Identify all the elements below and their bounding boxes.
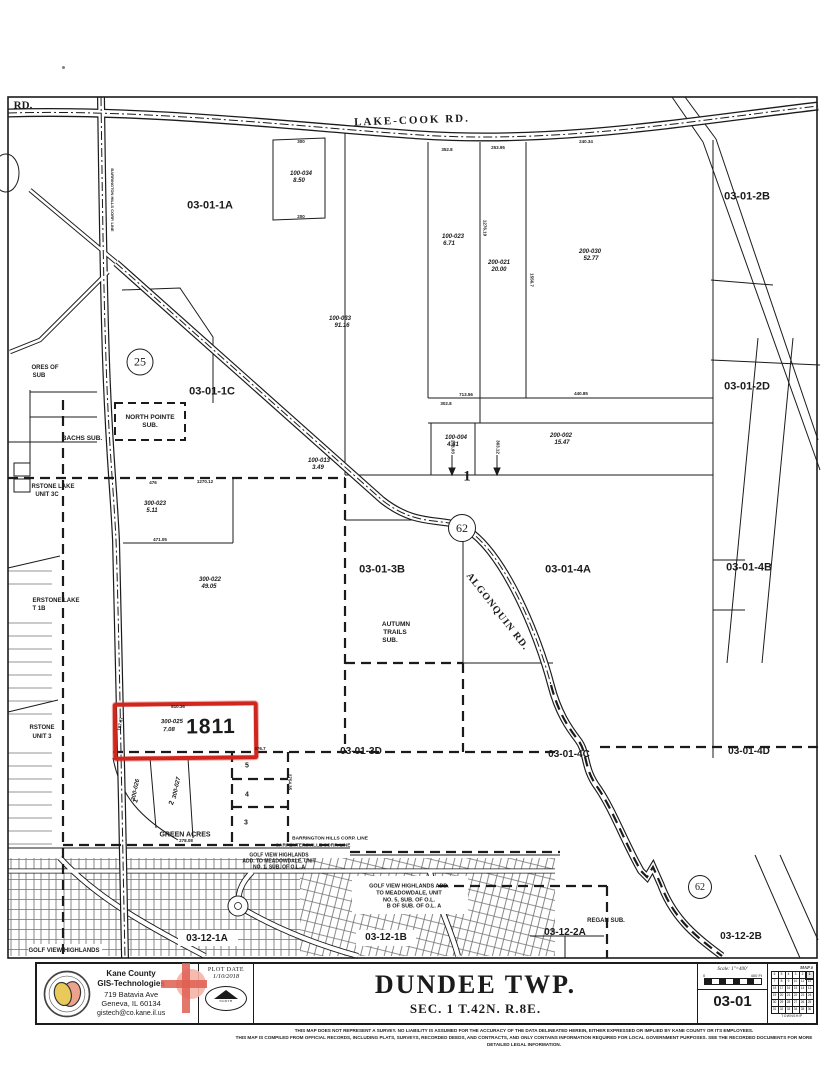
township-section-8: 8	[778, 979, 785, 986]
township-section-9: 9	[785, 979, 792, 986]
township-section-7: 7	[771, 979, 778, 986]
disclaimer: THIS MAP DOES NOT REPRESENT A SURVEY. NO…	[226, 1028, 822, 1049]
township-section-17: 17	[778, 986, 785, 993]
township-section-24: 24	[806, 993, 813, 1000]
scale-max: 400 Ft	[751, 973, 762, 978]
township-section-28: 28	[785, 1000, 792, 1007]
township-section-26: 26	[799, 1000, 806, 1007]
north-arrow: NORTH	[205, 986, 247, 1011]
plat-map-page: 300-025 7.08 1811 03-01-1A03-01-2B03-01-…	[0, 0, 826, 1080]
disclaimer-line1: THIS MAP DOES NOT REPRESENT A SURVEY. NO…	[226, 1028, 822, 1035]
map-title-cell: DUNDEE TWP. SEC. 1 T.42N. R.8E.	[254, 964, 698, 1023]
township-section-13: 13	[806, 986, 813, 993]
township-section-30: 30	[771, 1000, 778, 1007]
map-grid-footer: TOWNSHIP	[768, 1014, 816, 1018]
township-section-32: 32	[778, 1007, 785, 1014]
township-section-3: 3	[792, 972, 799, 979]
township-title: DUNDEE TWP.	[375, 970, 576, 1000]
township-section-25: 25	[806, 1000, 813, 1007]
township-section-12: 12	[806, 979, 813, 986]
scale-zero: 0	[703, 973, 705, 978]
township-section-1: 1	[806, 972, 813, 979]
township-section-22: 22	[792, 993, 799, 1000]
agency-name-line1: Kane County	[97, 969, 165, 979]
township-section-2: 2	[799, 972, 806, 979]
route-marker-25: 25	[127, 349, 154, 376]
township-section-33: 33	[785, 1007, 792, 1014]
title-block: Kane County GIS-Technologies 719 Batavia…	[35, 962, 818, 1025]
plot-date-value: 1/10/2018	[199, 973, 253, 980]
scale-bar	[704, 978, 762, 985]
township-section-11: 11	[799, 979, 806, 986]
township-section-4: 4	[785, 972, 792, 979]
township-section-29: 29	[778, 1000, 785, 1007]
route-marker-62: 62	[688, 875, 712, 899]
plot-date-cell: PLOT DATE 1/10/2018 NORTH	[199, 964, 254, 1023]
kane-county-seal	[42, 969, 92, 1019]
township-section-15: 15	[792, 986, 799, 993]
agency-cell: Kane County GIS-Technologies 719 Batavia…	[37, 964, 199, 1023]
map-grid-title: MAP #	[768, 965, 816, 970]
route-markers-layer: 256262	[0, 0, 826, 1080]
township-section-5: 5	[778, 972, 785, 979]
township-section-19: 19	[771, 993, 778, 1000]
township-section-14: 14	[799, 986, 806, 993]
agency-name-line2: GIS-Technologies	[97, 979, 165, 989]
township-section-20: 20	[778, 993, 785, 1000]
township-section-16: 16	[785, 986, 792, 993]
north-arrow-icon	[214, 990, 238, 999]
sheet-number: 03-01	[698, 989, 767, 1010]
agency-city: Geneva, IL 60134	[97, 999, 165, 1009]
township-section-34: 34	[792, 1007, 799, 1014]
township-section-31: 31	[771, 1007, 778, 1014]
section-subtitle: SEC. 1 T.42N. R.8E.	[410, 1001, 541, 1017]
township-section-18: 18	[771, 986, 778, 993]
township-section-23: 23	[799, 993, 806, 1000]
agency-address: Kane County GIS-Technologies 719 Batavia…	[97, 969, 165, 1018]
scale-label: Scale: 1"=400'	[698, 967, 767, 972]
scale-cell: Scale: 1"=400' 0 400 Ft 03-01	[698, 964, 768, 1023]
township-section-grid: 6543217891011121817161514131920212223243…	[771, 971, 814, 1014]
township-section-10: 10	[792, 979, 799, 986]
township-section-35: 35	[799, 1007, 806, 1014]
route-marker-62: 62	[448, 514, 476, 542]
agency-street: 719 Batavia Ave	[97, 990, 165, 1000]
agency-email: gistech@co.kane.il.us	[97, 1009, 165, 1018]
township-section-27: 27	[792, 1000, 799, 1007]
township-grid-cell: MAP # 6543217891011121817161514131920212…	[768, 964, 816, 1023]
township-section-36: 36	[806, 1007, 813, 1014]
township-section-21: 21	[785, 993, 792, 1000]
north-arrow-label: NORTH	[206, 999, 246, 1003]
disclaimer-line2: THIS MAP IS COMPILED FROM OFFICIAL RECOR…	[226, 1035, 822, 1049]
township-section-6: 6	[771, 972, 778, 979]
